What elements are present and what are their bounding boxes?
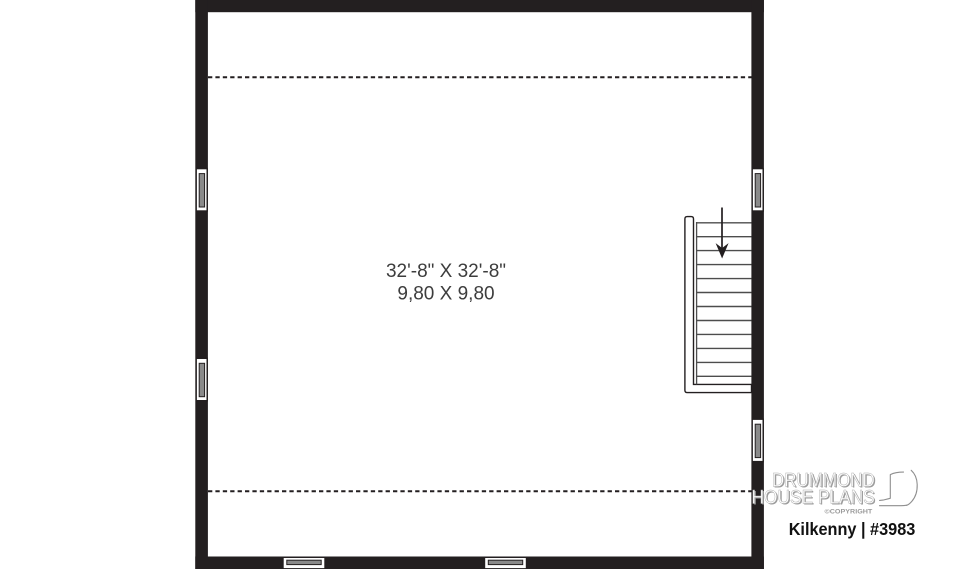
svg-text:32'-8" X 32'-8": 32'-8" X 32'-8" bbox=[386, 261, 506, 282]
svg-text:HOUSE PLANS: HOUSE PLANS bbox=[752, 487, 875, 508]
svg-text:9,80 X 9,80: 9,80 X 9,80 bbox=[397, 284, 494, 305]
svg-text:©COPYRIGHT: ©COPYRIGHT bbox=[825, 507, 873, 515]
svg-text:Kilkenny | #3983: Kilkenny | #3983 bbox=[789, 519, 916, 539]
